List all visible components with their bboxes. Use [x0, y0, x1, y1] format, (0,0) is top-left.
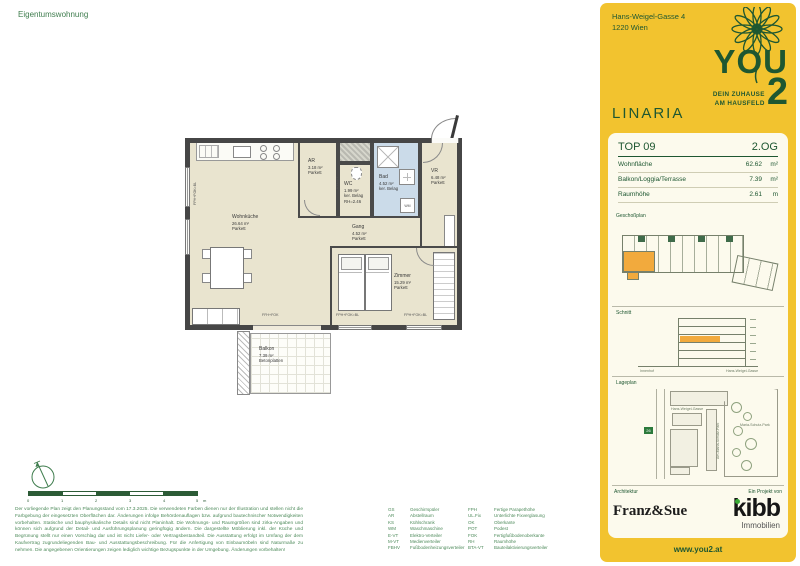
wardrobe-icon — [433, 252, 455, 320]
zimmer-door-arc — [416, 248, 434, 266]
legend-right: FPHFertige Parapethöhe UL.FixUnterlichte… — [468, 507, 548, 552]
room-vr: VR 6.48 m² Parkett — [420, 143, 457, 255]
schnitt-mini: Innenhof Hans-Weigel-Gasse — [608, 318, 788, 373]
window-bottom-1 — [338, 325, 372, 330]
washbasin-icon — [399, 169, 415, 185]
highlighted-balcony — [627, 272, 639, 280]
highlighted-unit — [623, 251, 655, 272]
room-ar-floor: Parkett — [308, 170, 323, 176]
unit-info-card: TOP 09 2.OG Wohnfläche62.62m² Balkon/Log… — [608, 133, 788, 538]
room-wohnkueche-name: Wohnküche — [232, 215, 258, 221]
kibb-green-dot-icon — [735, 499, 740, 504]
schnitt-right-label: Hans-Weigel-Gasse — [726, 369, 758, 373]
unit-floor: 2.OG — [752, 141, 778, 153]
room-wc-note: RH=2.46 — [344, 199, 363, 205]
balcony-door-opening — [253, 325, 321, 330]
street-label: Hans-Weigel-Gasse — [671, 407, 703, 411]
room-gang-floor: Parkett — [352, 236, 367, 242]
room-bad: WM Bad 4.52 m² ker. Belag — [372, 143, 420, 218]
website-link[interactable]: www.you2.at — [600, 545, 796, 554]
washing-machine-icon: WM — [400, 198, 415, 213]
metric-row: Raumhöhe2.61m — [618, 191, 778, 198]
room-zimmer-name: Zimmer — [394, 274, 411, 280]
sink-icon — [233, 146, 251, 158]
room-gang: Gang 4.52 m² Parkett — [352, 225, 367, 242]
transit-badge: 26 — [644, 427, 653, 434]
room-ar: AR 3.18 m² Parkett — [298, 143, 338, 218]
geschossplan-mini — [616, 223, 780, 301]
door-annotation: FFH+FOK — [262, 313, 278, 317]
bed-icon — [338, 254, 365, 311]
stove-icon — [259, 144, 285, 158]
balcony: Balkon 7.39 m² Betonplatten — [237, 331, 331, 395]
floor-plan: AR 3.18 m² Parkett BTA/VT WC 1.99 m² ker… — [185, 120, 485, 405]
project-name: LINARIA — [612, 105, 684, 122]
room-wc: WC 1.99 m² ker. Belag RH=2.46 — [338, 163, 372, 218]
kitchen-counter — [196, 143, 294, 161]
section-label-schnitt: Schnitt — [616, 310, 631, 316]
address-line2: 1220 Wien — [612, 23, 685, 34]
sofa-icon — [192, 308, 240, 325]
architect-logo: Franz&Sue — [613, 503, 687, 520]
room-vr-floor: Parkett — [431, 180, 446, 186]
window-annotation: FPH+FOK=BL — [404, 313, 427, 317]
window-left-2 — [185, 219, 190, 255]
dining-table — [210, 247, 244, 289]
vr-door-arc — [423, 143, 443, 163]
balcony-railing — [237, 331, 250, 395]
category-label: Eigentumswohnung — [18, 10, 88, 19]
developer-sub-label: Immobilien — [733, 521, 780, 530]
fridge-icon — [199, 145, 219, 158]
north-compass-icon — [26, 458, 60, 492]
room-balkon-floor: Betonplatten — [259, 358, 283, 364]
apartment-outline: AR 3.18 m² Parkett BTA/VT WC 1.99 m² ker… — [185, 138, 462, 330]
street2-label: Am-Maria-Schutz-Park — [716, 423, 720, 459]
lageplan-mini: 26 Hans-Weigel-Gasse Am-Maria-Schutz-Par… — [608, 389, 788, 481]
window-annotation: FPH+FOK=BL — [336, 313, 359, 317]
room-zimmer-floor: Parkett — [394, 285, 411, 291]
schnitt-left-label: Innenhof — [640, 369, 654, 373]
you2-logo: YOU DEIN ZUHAUSE AM HAUSFELD 2 — [678, 47, 788, 109]
sidebar: Hans-Weigel-Gasse 4 1220 Wien — [600, 3, 796, 562]
room-wc-floor: ker. Belag — [344, 193, 363, 199]
park-label: Maria-Schutz-Park — [740, 423, 770, 427]
logo-tagline: DEIN ZUHAUSE AM HAUSFELD — [713, 90, 765, 109]
window-annotation: FPH+FOK=BL — [193, 182, 197, 205]
bed-icon — [365, 254, 392, 311]
developer-logo: kibb Immobilien — [733, 497, 780, 530]
room-bad-floor: ker. Belag — [379, 186, 398, 192]
logo-two: 2 — [767, 77, 788, 107]
installation-shaft — [338, 143, 372, 163]
scale-bar — [28, 491, 198, 496]
project-address: Hans-Weigel-Gasse 4 1220 Wien — [612, 12, 685, 34]
ar-door-arc — [304, 200, 320, 216]
room-wohnkueche: Wohnküche 26.64 m² Parkett — [232, 215, 258, 232]
metric-row: Wohnfläche62.62m² — [618, 161, 778, 168]
legend-left: GSGeschirrspüler ARAbstellraum KSKühlsch… — [388, 507, 465, 552]
disclaimer-text: Der vorliegende Plan zeigt den Planungss… — [15, 507, 303, 555]
highlighted-building — [672, 413, 702, 426]
address-line1: Hans-Weigel-Gasse 4 — [612, 12, 685, 23]
plan-sheet: Eigentumswohnung A — [0, 0, 800, 566]
room-wohnkueche-floor: Parkett — [232, 226, 258, 232]
section-label-geschossplan: Geschoßplan — [616, 213, 646, 219]
dining-table-group — [202, 239, 250, 295]
shower-icon — [377, 146, 399, 168]
vr-cabinet — [444, 215, 455, 247]
toilet-icon — [351, 167, 362, 180]
section-label-lageplan: Lageplan — [616, 380, 637, 386]
unit-number: TOP 09 — [618, 141, 656, 153]
window-left-1 — [185, 167, 190, 207]
window-bottom-2 — [406, 325, 442, 330]
architect-section-label: Architektur — [614, 489, 638, 495]
metric-row: Balkon/Loggia/Terrasse7.39m² — [618, 176, 778, 183]
